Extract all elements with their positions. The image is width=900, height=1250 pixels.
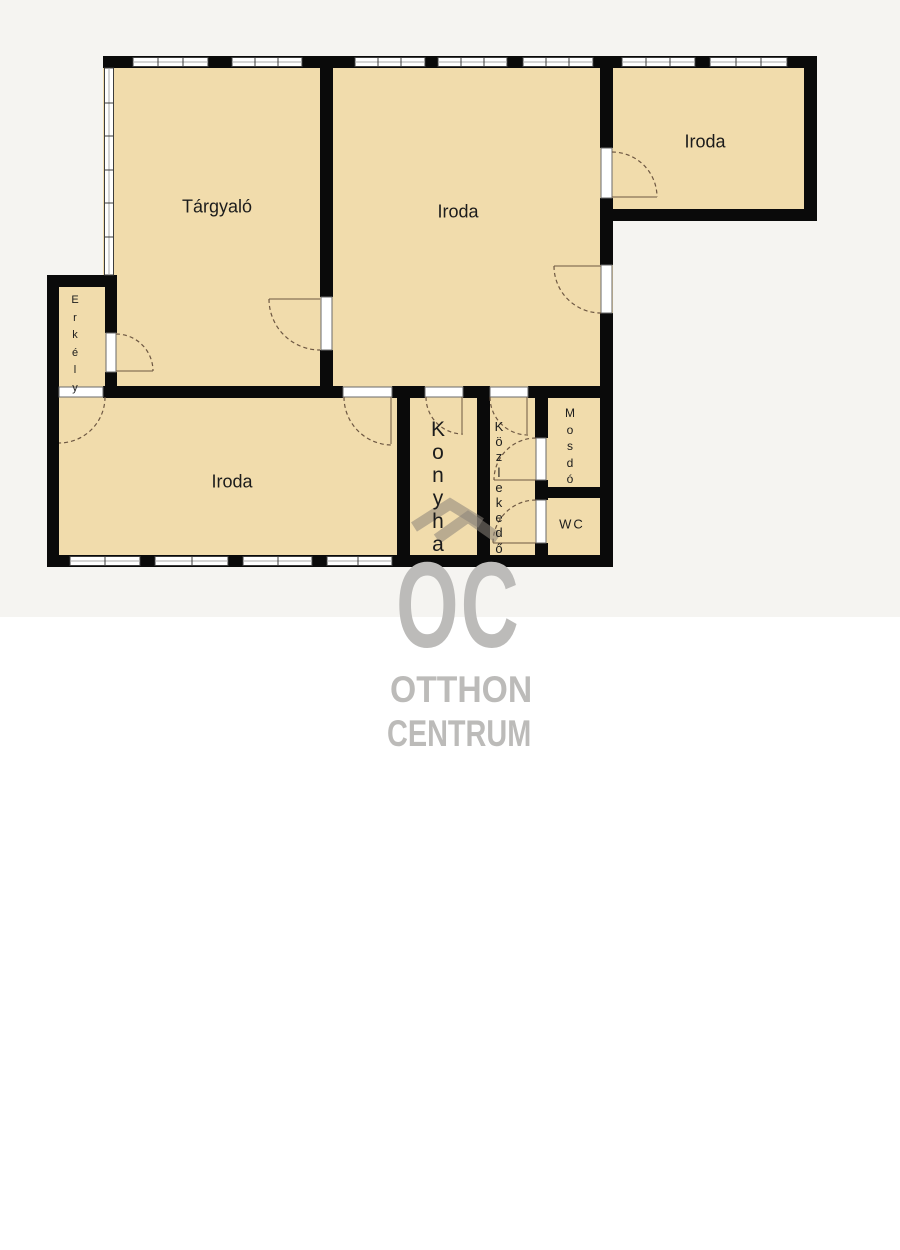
room-label-konyha: Konyha xyxy=(431,418,445,556)
floorplan-canvas: Tárgyaló Iroda Iroda Iroda Erkély Konyha… xyxy=(0,0,900,1250)
door-kozlekedo xyxy=(490,387,528,397)
window xyxy=(622,58,695,67)
window xyxy=(133,58,208,67)
wall-left-exterior xyxy=(47,275,59,567)
room-label-mosdo: Mosdó xyxy=(565,405,575,488)
window-left-wall xyxy=(105,68,114,275)
wall-center-divider-upper xyxy=(600,68,613,148)
wall-erkely-top xyxy=(47,275,117,287)
wall-erkely-right-upper xyxy=(105,287,117,333)
room-label-iroda-center: Iroda xyxy=(437,202,478,223)
window xyxy=(327,557,392,566)
window xyxy=(70,557,140,566)
door-balcony xyxy=(59,387,103,397)
room-label-targyalo: Tárgyaló xyxy=(182,197,252,218)
wall-konyha-left xyxy=(397,386,410,555)
wall-right-exterior xyxy=(804,56,817,221)
wall-east-lower xyxy=(600,313,613,567)
wall-kozlekedo-right-a xyxy=(535,398,548,438)
window xyxy=(232,58,302,67)
wall-iroda-right-bottom xyxy=(613,209,817,221)
window xyxy=(710,58,787,67)
door-konyha xyxy=(425,387,463,397)
wall-mosdo-wc-divider xyxy=(548,487,600,498)
door-mosdo xyxy=(536,438,546,480)
window xyxy=(355,58,425,67)
wall-mid-horizontal-d xyxy=(528,386,613,398)
room-label-erkely: Erkély xyxy=(71,292,78,397)
wall-center-divider-stub xyxy=(600,198,613,209)
door-targyalo-erkely xyxy=(106,333,116,372)
window xyxy=(523,58,593,67)
room-label-iroda-right: Iroda xyxy=(684,132,725,153)
window xyxy=(438,58,507,67)
watermark-initials: OC xyxy=(396,544,521,666)
room-label-wc: WC xyxy=(559,517,585,532)
wall-kozlekedo-right-c xyxy=(535,543,548,555)
door-iroda-bottom xyxy=(343,387,392,397)
wall-east-upper xyxy=(600,209,613,265)
watermark-brand-line2: CENTRUM xyxy=(387,715,531,752)
door-iroda-east xyxy=(601,265,612,313)
door-targyalo-iroda xyxy=(321,297,332,350)
watermark-brand-line1: OTTHON xyxy=(390,671,532,708)
window xyxy=(243,557,312,566)
door-wc xyxy=(536,500,546,543)
wall-mid-horizontal-a xyxy=(103,386,343,398)
window xyxy=(155,557,228,566)
room-label-kozlekedo: Közlekedő xyxy=(495,419,504,556)
wall-kozlekedo-right-b xyxy=(535,480,548,500)
door-iroda-right-room xyxy=(601,148,612,198)
wall-targyalo-divider-upper xyxy=(320,56,333,297)
room-label-iroda-bottom: Iroda xyxy=(211,472,252,493)
